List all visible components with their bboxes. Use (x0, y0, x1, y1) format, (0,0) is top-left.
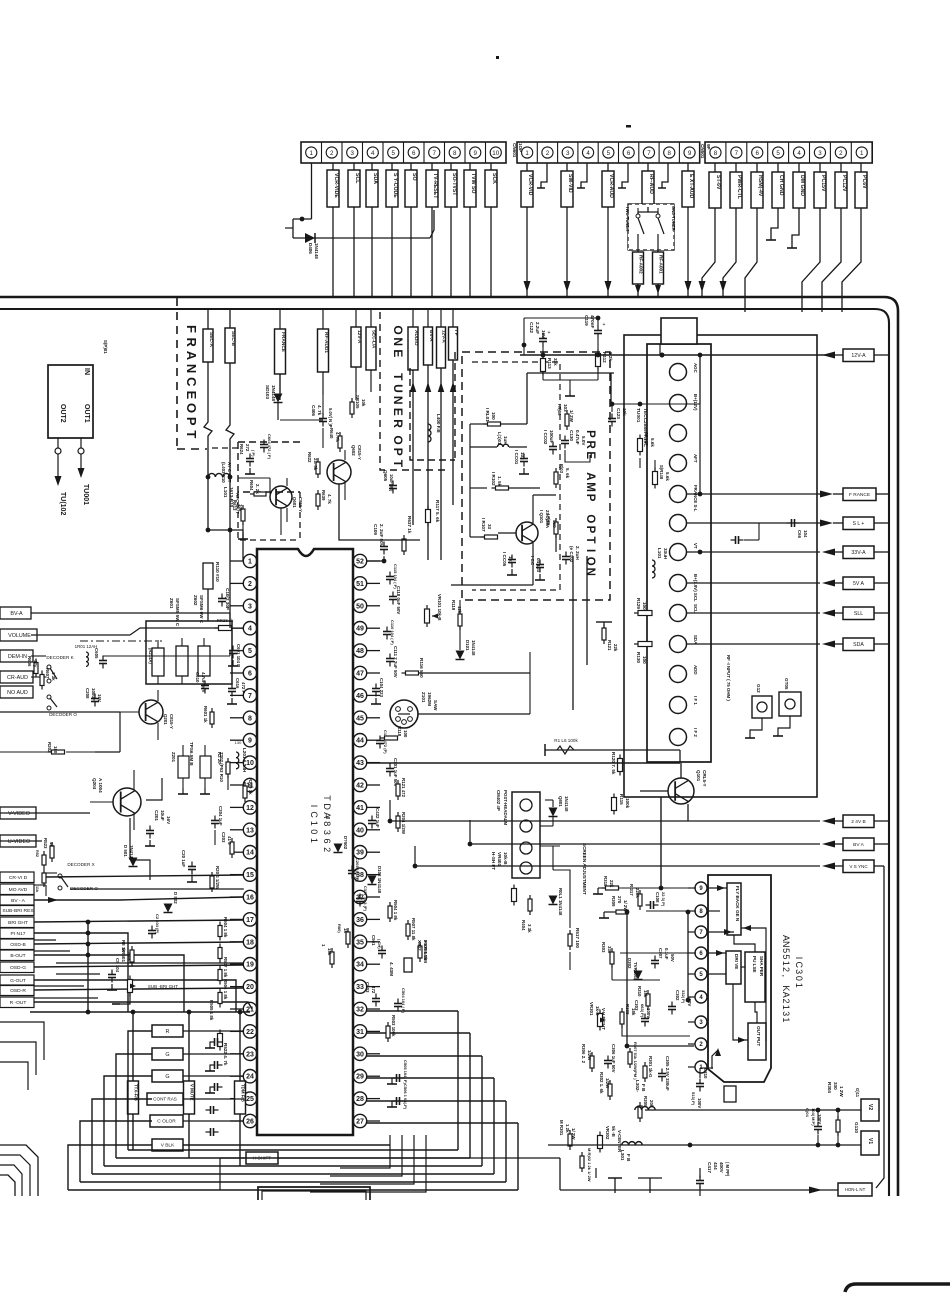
svg-text:Z602: Z602 (193, 595, 198, 606)
svg-text:OUT2: OUT2 (59, 404, 66, 423)
svg-text:Q601: Q601 (292, 497, 297, 508)
svg-text:L(1)01: L(1)01 (497, 432, 502, 445)
svg-text:D: D (322, 803, 332, 810)
svg-text:OSD-G: OSD-G (10, 965, 26, 971)
svg-text:R304: R304 (827, 1082, 832, 1093)
svg-text:DEM-IN: DEM-IN (8, 654, 27, 660)
svg-text:2. 2uH: 2. 2uH (575, 546, 580, 560)
svg-text:RF-A002: RF-A002 (639, 255, 644, 274)
svg-text:220k: 220k (635, 888, 640, 898)
svg-text:I R)05: I R)05 (546, 514, 551, 526)
svg-text:N: N (391, 337, 405, 346)
svg-text:C110 104 ( P): C110 104 ( P) (390, 620, 395, 645)
svg-text:RF-AUD1: RF-AUD1 (323, 332, 329, 353)
svg-text:1/2W: 1/2W (605, 1078, 610, 1089)
svg-text:CRL5-Y: CRL5-Y (702, 770, 707, 787)
svg-text:1962M: 1962M (427, 692, 432, 706)
svg-text:A: A (584, 472, 596, 480)
svg-text:( M PP): ( M PP) (725, 1162, 730, 1177)
svg-text:C119: C119 (584, 315, 589, 326)
svg-text:8: 8 (248, 715, 252, 722)
svg-text:VR401: VR401 (497, 852, 502, 866)
svg-text:22k: 22k (609, 880, 614, 888)
svg-text:48: 48 (356, 648, 364, 655)
svg-text:B+(1.9V) SCL: B+(1.9V) SCL (693, 574, 698, 602)
svg-text:R505 1 8k: R505 1 8k (209, 1000, 214, 1021)
svg-text:M R301: M R301 (559, 1120, 564, 1136)
svg-text:DECODER O: DECODER O (49, 712, 77, 717)
svg-text:PWR-CTL: PWR-CTL (736, 175, 742, 200)
svg-text:K: K (781, 985, 791, 991)
svg-text:OUT PUT: OUT PUT (756, 1026, 761, 1046)
svg-text:10k: 10k (238, 504, 243, 512)
svg-text:2 4V B: 2 4V B (851, 819, 865, 825)
svg-text:32: 32 (356, 1007, 364, 1014)
svg-text:,: , (781, 975, 791, 978)
svg-text:6: 6 (322, 838, 332, 843)
svg-text:103: 103 (520, 452, 525, 460)
svg-text:AFT: AFT (693, 454, 698, 463)
svg-text:R637 1k: R637 1k (407, 516, 412, 534)
svg-text:R503 100k: R503 100k (391, 1015, 396, 1037)
svg-text:L302-: L302- (635, 1080, 640, 1092)
svg-text:2: 2 (330, 150, 334, 157)
svg-text:T: T (322, 795, 332, 801)
svg-text:5. 6k: 5. 6k (565, 468, 570, 479)
svg-text:472: 472 (371, 986, 376, 994)
svg-text:C204 1uF: C204 1uF (218, 806, 223, 826)
svg-text:NO AUD: NO AUD (7, 690, 28, 696)
svg-text:50: 50 (356, 603, 364, 610)
svg-text:D 502: D 502 (173, 892, 178, 904)
svg-text:2. 2k: 2. 2k (255, 484, 260, 494)
svg-text:FRANCE S-L: FRANCE S-L (693, 485, 698, 512)
svg-text:33k: 33k (553, 358, 558, 366)
svg-text:39: 39 (356, 850, 364, 857)
svg-text:VCR-VIDE: VCR-VIDE (333, 173, 339, 198)
svg-text:7: 7 (735, 150, 739, 157)
svg-text:AY C OUT: AY C OUT (227, 462, 232, 483)
svg-text:PC6V: PC6V (861, 175, 867, 189)
svg-text:I R)06: I R)06 (557, 404, 562, 416)
svg-text:F RANCE: F RANCE (849, 492, 870, 498)
svg-text:18k: 18k (631, 1008, 636, 1016)
svg-text:I: I (309, 805, 319, 808)
svg-text:12V-A: 12V-A (356, 330, 362, 344)
svg-text:6: 6 (627, 150, 631, 157)
svg-text:28: 28 (356, 1096, 364, 1103)
svg-text:3: 3 (566, 150, 570, 157)
svg-text:130: 130 (235, 740, 242, 745)
svg-text:B-OUT: B-OUT (10, 953, 25, 959)
svg-text:C116 472 (P): C116 472 (P) (383, 730, 388, 754)
svg-text:VR101 10k-B: VR101 10k-B (437, 594, 442, 621)
svg-text:R306 2. 2: R306 2. 2 (581, 1044, 586, 1064)
svg-text:3: 3 (322, 830, 332, 835)
svg-text:SCL: SCL (354, 173, 360, 184)
svg-text:L201 6 2uH: L201 6 2uH (242, 748, 247, 773)
svg-text:I F 1: I F 1 (693, 696, 698, 705)
svg-text:HON-L NT: HON-L NT (845, 1187, 866, 1192)
svg-text:1: 1 (309, 838, 319, 843)
svg-text:31: 31 (356, 1029, 364, 1036)
svg-text:470nF: 470nF (590, 315, 595, 328)
svg-text:20: 20 (246, 984, 254, 991)
svg-text:1 2k: 1 2k (565, 1124, 570, 1133)
svg-text:2.2uF: 2.2uF (535, 322, 540, 334)
svg-text:35: 35 (356, 939, 364, 946)
svg-text:1: 1 (525, 150, 529, 157)
svg-text:V1: V1 (867, 1138, 873, 1144)
svg-text:16V: 16V (166, 816, 171, 825)
svg-text:I CC02: I CC02 (543, 430, 548, 445)
svg-text:BV-A: BV-A (10, 611, 23, 617)
svg-text:SLL: SLL (854, 611, 863, 617)
svg-text:15: 15 (246, 872, 254, 879)
svg-text:R607: R607 (45, 668, 50, 679)
svg-text:8: 8 (714, 150, 718, 157)
svg-text:2: 2 (781, 967, 791, 972)
svg-text:CR-VI D: CR-VI D (9, 875, 28, 881)
svg-text:CONT RAS: CONT RAS (153, 1097, 177, 1102)
svg-text:SHA PER: SHA PER (759, 956, 764, 977)
svg-text:S L +: S L + (853, 521, 865, 527)
svg-text:R301 1k-G: R301 1k-G (648, 1056, 653, 1078)
svg-text:VR302: VR302 (605, 1126, 610, 1140)
svg-text:SFSM6 0W C: SFSM6 0W C (199, 595, 204, 624)
svg-text:330: 330 (833, 1082, 838, 1090)
svg-text:7: 7 (433, 150, 437, 157)
svg-text:10uF: 10uF (160, 810, 165, 821)
svg-text:D 501: D 501 (123, 845, 128, 857)
svg-text:8: 8 (453, 150, 457, 157)
svg-text:5k -B: 5k -B (611, 1126, 616, 1137)
svg-text:5: 5 (248, 648, 252, 655)
svg-text:SD103: SD103 (265, 385, 270, 399)
svg-text:SW-VID: SW-VID (567, 174, 573, 193)
svg-text:R318: R318 (603, 876, 608, 887)
svg-text:S)R148: S)R148 (659, 465, 664, 480)
svg-text:27: 27 (356, 1119, 364, 1126)
svg-text:R129: R129 (636, 598, 641, 609)
svg-text:3: 3 (781, 1011, 791, 1016)
svg-text:C815-Y: C815-Y (357, 445, 362, 460)
svg-text:C118 0uF 50V: C118 0uF 50V (396, 586, 401, 614)
svg-text:DECODER X: DECODER X (67, 862, 94, 867)
svg-text:R202: R202 (47, 742, 52, 753)
svg-text:H-SH FT: H-SH FT (491, 852, 496, 870)
svg-text:47: 47 (356, 671, 364, 678)
svg-text:0.47uF: 0.47uF (575, 430, 580, 445)
svg-text:4: 4 (586, 150, 590, 157)
svg-text:0: 0 (794, 976, 804, 981)
svg-text:11k: 11k (35, 886, 39, 893)
svg-text:+: + (603, 322, 606, 328)
svg-text:R204 1/2W: R204 1/2W (401, 812, 406, 835)
svg-text:50V: 50V (670, 954, 675, 962)
svg-text:103: 103 (508, 556, 513, 564)
svg-text:R622: R622 (307, 452, 312, 463)
svg-text:104( M P): 104( M P) (811, 1108, 816, 1126)
svg-text:12V-A: 12V-A (442, 330, 447, 343)
svg-text:C104 223: C104 223 (379, 678, 384, 698)
svg-text:9R147: 9R147 (644, 432, 649, 446)
svg-text:N: N (391, 396, 405, 405)
svg-text:P: P (391, 448, 405, 456)
svg-text:C: C (184, 377, 199, 387)
svg-text:R209 1k: R209 1k (248, 778, 253, 795)
svg-text:3 3k: 3 3k (527, 924, 532, 933)
svg-text:C201: C201 (154, 810, 159, 821)
svg-text:I F: I F (453, 330, 459, 336)
svg-text:10k: 10k (622, 408, 627, 416)
svg-text:O: O (584, 514, 596, 523)
svg-text:U-VIDEO: U-VIDEO (8, 839, 30, 845)
svg-text:C310: C310 (703, 1068, 708, 1079)
svg-text:18: 18 (246, 939, 254, 946)
svg-text:100uF: 100uF (91, 688, 96, 701)
svg-text:X502: X502 (417, 940, 422, 951)
svg-text:43: 43 (356, 760, 364, 767)
svg-text:8.2k: 8.2k (608, 352, 613, 361)
svg-text:P: P (584, 526, 596, 534)
svg-text:R309: R309 (611, 896, 616, 907)
svg-text:FRANCE: FRANCE (280, 332, 286, 353)
svg-text:GT05: GT05 (784, 678, 789, 690)
svg-text:R80): R80) (337, 924, 342, 933)
svg-text:0: 0 (309, 829, 319, 834)
svg-text:R1 L6 100k: R1 L6 100k (554, 738, 578, 743)
svg-text:G: G (165, 1074, 169, 1080)
svg-text:Q602: Q602 (351, 445, 356, 456)
svg-text:52: 52 (356, 559, 364, 566)
svg-text:SEC-B: SEC-B (230, 331, 236, 346)
svg-text:1/ 2W: 1/ 2W (571, 1128, 576, 1140)
svg-text:330: 330 (607, 946, 612, 954)
svg-text:I R107: I R107 (481, 518, 486, 532)
svg-text:P: P (184, 417, 199, 426)
svg-text:G110: G110 (854, 1122, 859, 1133)
svg-text:R113: R113 (547, 358, 552, 369)
svg-text:33V-A: 33V-A (851, 550, 866, 556)
svg-text:D102 1N4148: D102 1N4148 (377, 866, 382, 894)
svg-text:1N4148: 1N4148 (564, 796, 569, 812)
svg-text:103: 103 (563, 404, 568, 412)
svg-text:29: 29 (356, 1074, 364, 1081)
svg-text:40: 40 (356, 827, 364, 834)
svg-text:4. 7k: 4. 7k (335, 432, 340, 442)
svg-text:R: R (391, 419, 405, 428)
svg-text:C422 1uF: C422 1uF (375, 808, 380, 828)
svg-text:C: C (794, 962, 804, 969)
svg-text:6: 6 (756, 150, 760, 157)
svg-text:TPS6.5M B: TPS6.5M B (189, 742, 194, 766)
svg-text:16V: 16V (541, 330, 546, 339)
svg-text:10uF( M): 10uF( M) (389, 474, 394, 492)
svg-text:1: 1 (781, 1005, 791, 1010)
svg-text:C111 2 2uF 50V: C111 2 2uF 50V (393, 646, 398, 678)
svg-text:R110 #10: R110 #10 (215, 562, 220, 582)
svg-text:RF-AUD: RF-AUD (648, 174, 654, 194)
svg-text:R523: R523 (43, 838, 48, 849)
svg-text:272: 272 (245, 444, 250, 452)
svg-text:9: 9 (688, 150, 692, 157)
svg-text:N: N (584, 568, 596, 576)
svg-text:R506 1 8k: R506 1 8k (223, 979, 228, 1000)
svg-text:R504 1 8k: R504 1 8k (223, 917, 228, 938)
svg-text:R121: R121 (607, 640, 612, 651)
svg-text:SCREEN ADJUSTMENT: SCREEN ADJUSTMENT (582, 843, 587, 895)
svg-text:C2 104 (P): C2 104 (P) (155, 914, 160, 934)
svg-text:O: O (584, 557, 596, 566)
svg-text:663( P): 663( P) (640, 1004, 645, 1018)
svg-text:SUB-BRI RES: SUB-BRI RES (2, 908, 34, 914)
svg-text:16: 16 (246, 895, 254, 902)
svg-text:P: P (584, 494, 596, 502)
svg-text:C66: C66 (797, 530, 802, 539)
svg-text:TV-RESET: TV-RESET (432, 173, 438, 199)
svg-text:R: R (166, 1029, 170, 1035)
svg-text:( CH): ( CH) (377, 939, 382, 949)
svg-text:C)04: C)04 (805, 1108, 810, 1117)
svg-text:C122: C122 (529, 322, 534, 333)
svg-text:U: U (391, 384, 405, 393)
svg-text:TWO TUNER: TWO TUNER (625, 206, 630, 231)
svg-text:8: 8 (322, 821, 332, 826)
svg-text:D302: D302 (627, 958, 632, 969)
svg-text:1N4148: 1N4148 (271, 385, 276, 402)
svg-text:4: 4 (371, 150, 375, 157)
svg-text:RR23 1k: RR23 1k (217, 618, 235, 623)
svg-text:R310: R310 (637, 986, 642, 997)
svg-text:6: 6 (248, 671, 252, 678)
svg-text:O: O (184, 403, 199, 413)
svg-text:R302 1. 6k: R302 1. 6k (599, 1072, 604, 1094)
svg-text:( P): ( P) (251, 450, 256, 457)
svg-text:(L403 R10: (L403 R10 (221, 462, 226, 483)
svg-text:1: 1 (781, 1017, 791, 1022)
svg-text:G12: G12 (756, 684, 761, 693)
svg-text:1: 1 (860, 150, 864, 157)
svg-text:C327 41 3 (P): C327 41 3 (P) (363, 886, 368, 912)
svg-text:D101: D101 (465, 640, 470, 651)
svg-text:SDA: SDA (853, 642, 864, 648)
svg-text:C605: C605 (94, 648, 99, 659)
svg-text:I R102: I R102 (491, 472, 496, 486)
svg-text:PC12V: PC12V (841, 175, 847, 192)
svg-text:Q204: Q204 (92, 778, 97, 790)
svg-text:C604 472 ( P): C604 472 ( P) (267, 434, 272, 460)
svg-text:R303: R303 (601, 942, 606, 953)
svg-text:C504 104 ( P): C504 104 ( P) (401, 988, 406, 1014)
svg-text:R)03: R)03 (559, 464, 564, 474)
svg-text:26: 26 (246, 1119, 254, 1126)
svg-text:I RL01: I RL01 (485, 408, 490, 422)
svg-text:C815-Y: C815-Y (169, 714, 174, 729)
svg-text:42: 42 (356, 783, 364, 790)
svg-text:30: 30 (356, 1051, 364, 1058)
svg-text:6: 6 (412, 150, 416, 157)
svg-text:I: I (584, 549, 596, 552)
svg-text:R0L1 1N4148: R0L1 1N4148 (558, 888, 563, 916)
svg-text:1uH: 1uH (503, 436, 508, 445)
svg-text:AUDIO: AUDIO (413, 330, 419, 346)
svg-text:RF -I NPUT ( 75 OHM ): RF -I NPUT ( 75 OHM ) (726, 655, 731, 701)
svg-text:V S YNC: V S YNC (849, 864, 868, 869)
svg-text:12: 12 (246, 805, 254, 812)
svg-text:100: 100 (403, 730, 408, 738)
svg-text:C5 104: C5 104 (115, 958, 120, 973)
svg-text:17: 17 (246, 917, 254, 924)
svg-text:36: 36 (356, 917, 364, 924)
svg-text:E: E (184, 391, 199, 400)
svg-text:12V-A: 12V-A (851, 353, 866, 359)
svg-text:I CC05: I CC05 (502, 552, 507, 567)
svg-text:C503: C503 (365, 982, 370, 993)
svg-text:5: 5 (781, 954, 791, 959)
svg-text:10k-B: 10k-B (503, 852, 508, 865)
svg-text:R117 5. 6k: R117 5. 6k (435, 500, 440, 523)
svg-text:R604: R604 (249, 480, 254, 491)
svg-text:100uF: 100uF (549, 430, 554, 443)
svg-text:Q801: Q801 (558, 796, 563, 807)
svg-text:R601 1k: R601 1k (203, 706, 208, 723)
svg-text:CR-AUD: CR-AUD (7, 675, 28, 681)
svg-text:T: T (584, 536, 596, 543)
svg-text:100k: 100k (625, 798, 630, 809)
svg-text:Z201: Z201 (171, 752, 176, 763)
svg-text:3: 3 (818, 150, 822, 157)
svg-text:R507 1 8k: R507 1 8k (223, 957, 228, 978)
svg-text:C501: C501 (371, 935, 376, 946)
svg-text:12y: 12y (33, 660, 38, 668)
svg-text:R517 100: R517 100 (575, 928, 580, 948)
svg-text:10k: 10k (361, 399, 366, 407)
svg-text:C305 2.5V 330uF: C305 2.5V 330uF (665, 1056, 670, 1091)
svg-text:2: 2 (248, 581, 252, 588)
svg-text:4: 4 (797, 150, 801, 157)
svg-text:D406: D406 (308, 243, 313, 254)
svg-text:A 1004: A 1004 (98, 778, 103, 793)
svg-text:CH GND: CH GND (778, 175, 784, 196)
svg-text:1: 1 (310, 150, 314, 157)
svg-text:49: 49 (356, 626, 364, 633)
svg-text:VR301: VR301 (589, 1002, 594, 1016)
svg-text:HSM(-4V: HSM(-4V (757, 175, 763, 197)
svg-text:180: 180 (53, 746, 58, 754)
svg-text:BV A: BV A (853, 842, 864, 848)
svg-text:SCL: SCL (693, 604, 698, 613)
svg-text:4. 43M: 4. 43M (389, 962, 394, 976)
svg-text:R: R (184, 338, 199, 348)
svg-text:13: 13 (246, 827, 254, 834)
svg-text:PC15V: PC15V (820, 175, 826, 192)
svg-text:C130: C130 (569, 430, 574, 441)
svg-text:R507 11 8k: R507 11 8k (411, 918, 416, 941)
svg-text:N: N (184, 364, 199, 373)
svg-text:4: 4 (248, 626, 252, 633)
svg-text:1N4148: 1N4148 (314, 243, 319, 259)
svg-text:D?502: D?502 (343, 836, 348, 850)
svg-text:I F 2: I F 2 (693, 728, 698, 737)
svg-text:14: 14 (246, 850, 254, 857)
svg-text:9: 9 (474, 150, 478, 157)
svg-text:22 3( P): 22 3( P) (661, 892, 666, 907)
svg-text:R130: R130 (636, 652, 641, 663)
svg-text:ADD: ADD (693, 665, 698, 675)
svg-text:SFSM5 5W C: SFSM5 5W C (175, 598, 180, 627)
svg-text:5V A: 5V A (853, 581, 864, 587)
